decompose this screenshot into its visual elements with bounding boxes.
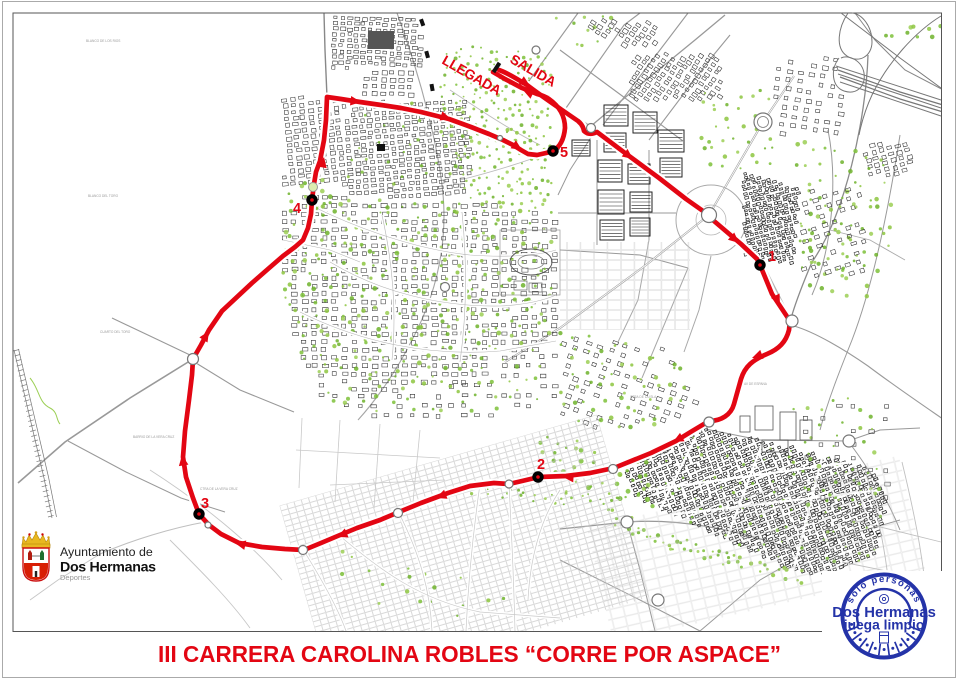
svg-text:BLANCO DE LOS RIOS: BLANCO DE LOS RIOS: [86, 39, 120, 43]
svg-text:III CARRERA CAROLINA ROBLES “C: III CARRERA CAROLINA ROBLES “CORRE POR A…: [158, 641, 781, 667]
svg-text:Ayuntamiento de: Ayuntamiento de: [60, 545, 153, 559]
svg-text:Deportes: Deportes: [60, 573, 91, 582]
svg-text:BARRIO DE LA VERA CRUZ: BARRIO DE LA VERA CRUZ: [133, 435, 174, 439]
svg-text:CUARTO DEL TORO: CUARTO DEL TORO: [100, 330, 131, 334]
svg-text:2: 2: [537, 457, 545, 473]
svg-text:5: 5: [560, 145, 568, 161]
svg-text:AV DE ESPANA: AV DE ESPANA: [744, 382, 768, 386]
svg-text:juega limpio: juega limpio: [843, 618, 925, 633]
svg-text:4: 4: [293, 201, 301, 217]
svg-text:CTRA DE LA VERA CRUZ: CTRA DE LA VERA CRUZ: [200, 487, 238, 491]
svg-text:CTRA DE LA ISLA MENOR: CTRA DE LA ISLA MENOR: [816, 479, 855, 483]
svg-text:BLANCO DEL TORO: BLANCO DEL TORO: [88, 194, 119, 198]
svg-text:1: 1: [768, 249, 776, 265]
svg-text:CTRA DE LA ISLA: CTRA DE LA ISLA: [630, 395, 657, 399]
svg-text:3: 3: [201, 496, 209, 512]
